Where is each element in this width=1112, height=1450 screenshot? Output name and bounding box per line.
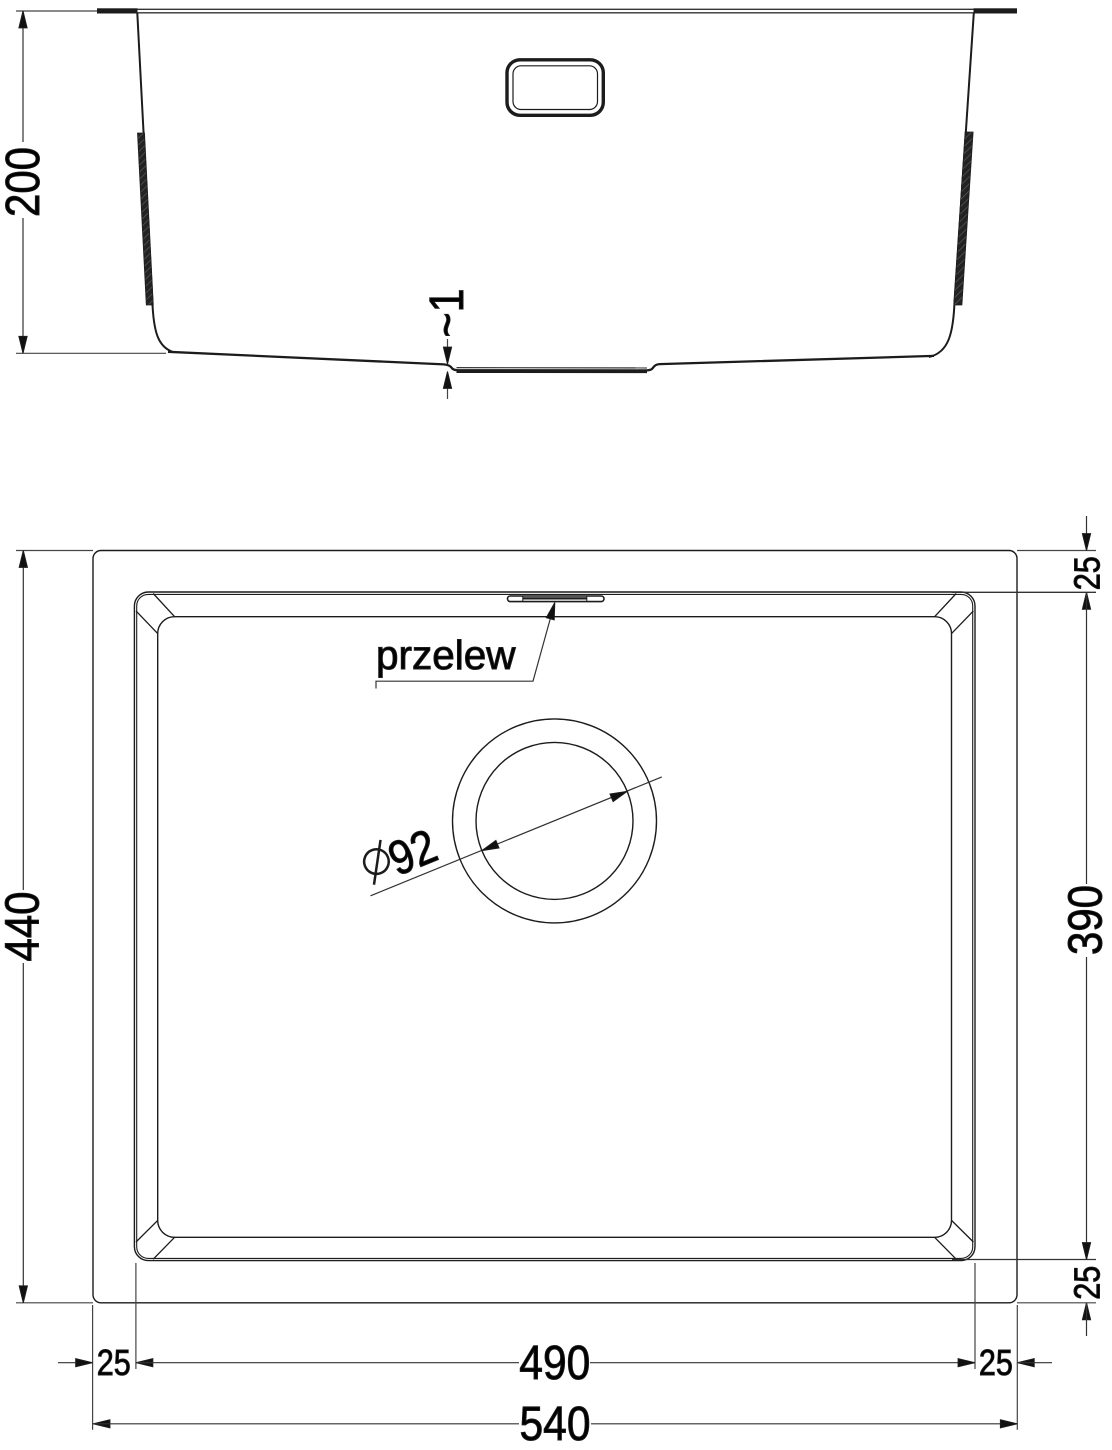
svg-text:25: 25 [1066,556,1107,590]
svg-text:440: 440 [0,892,50,962]
svg-text:25: 25 [1067,1266,1108,1300]
svg-text:~1: ~1 [421,289,474,338]
svg-text:490: 490 [519,1337,590,1390]
svg-text:przelew: przelew [376,632,516,678]
svg-text:25: 25 [979,1342,1013,1383]
svg-text:25: 25 [97,1342,131,1383]
svg-text:390: 390 [1060,885,1112,955]
svg-text:540: 540 [520,1398,591,1450]
svg-text:200: 200 [0,147,50,217]
